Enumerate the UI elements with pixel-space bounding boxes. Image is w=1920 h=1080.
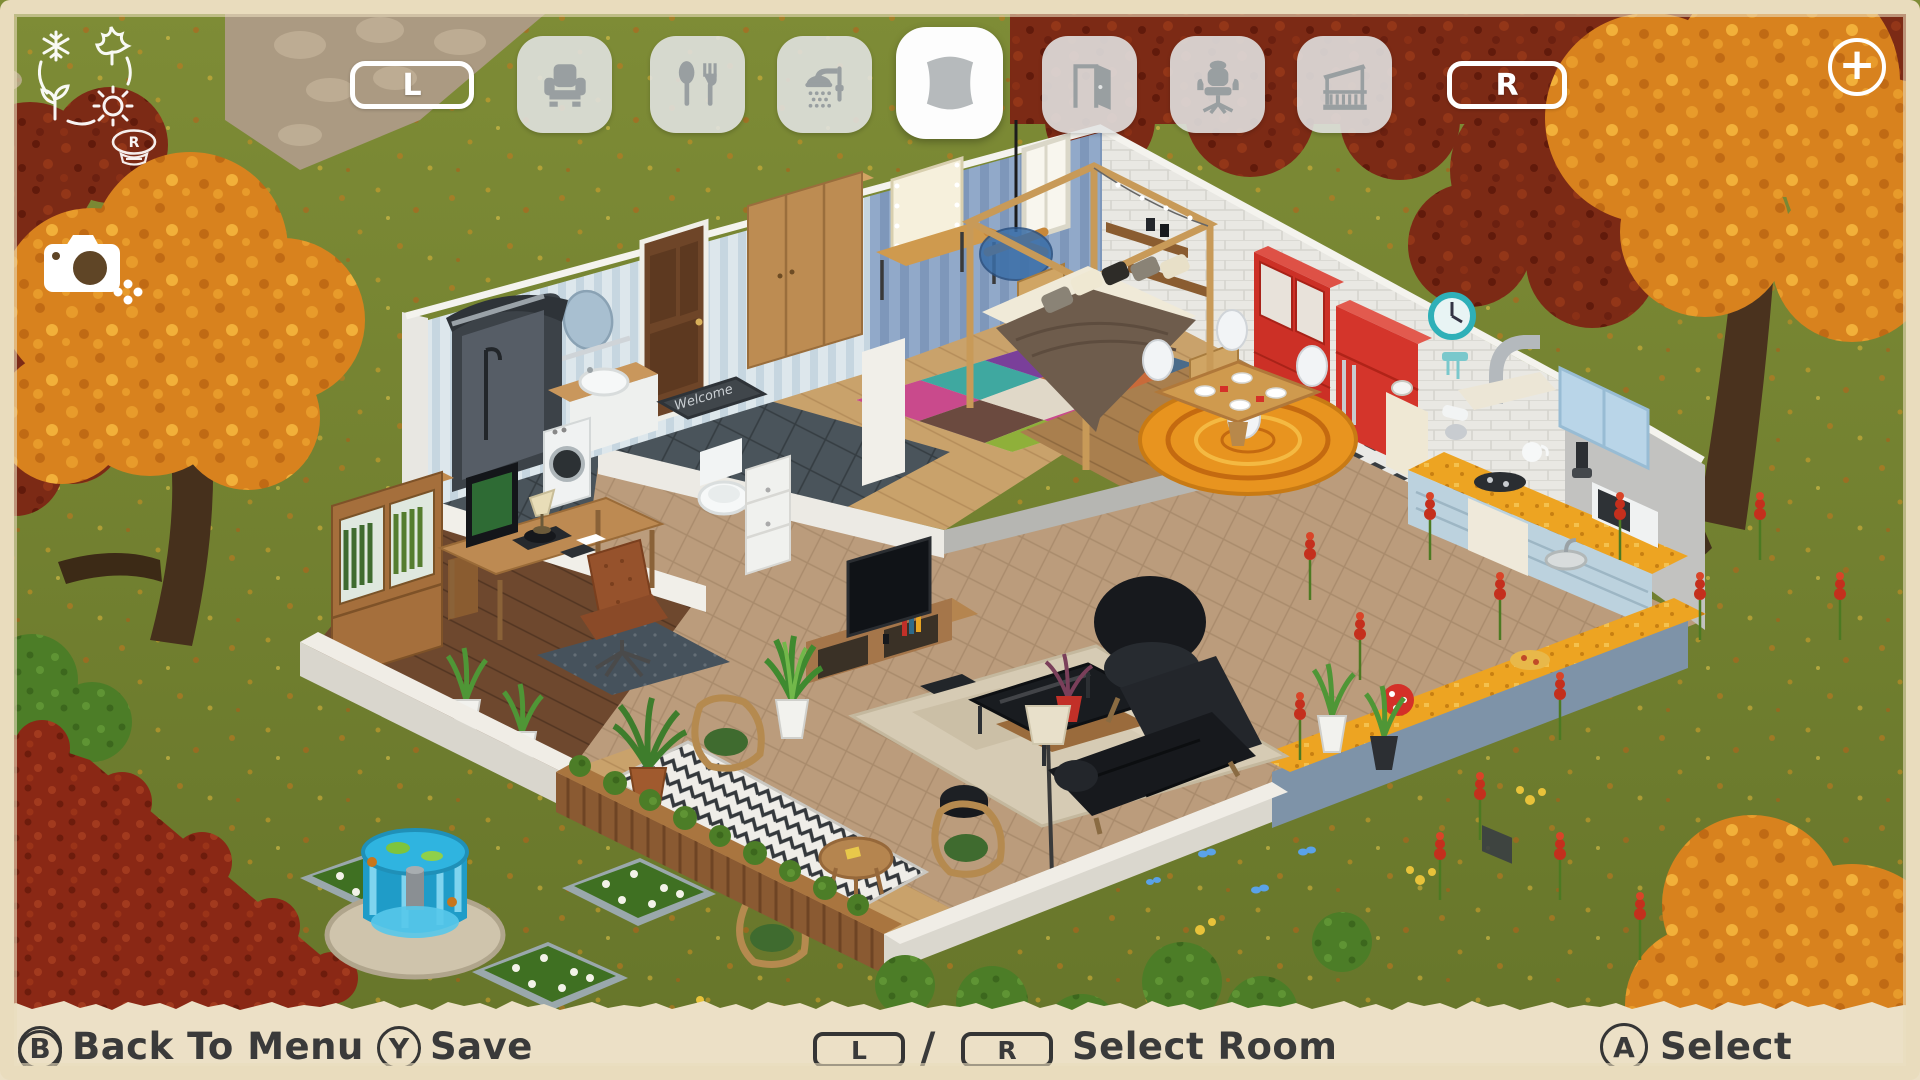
l-button-icon[interactable]: L xyxy=(813,1032,905,1068)
r-stick-icon: R xyxy=(108,128,160,174)
armchair-icon xyxy=(536,56,594,114)
cutlery-icon xyxy=(669,56,727,114)
cycle-arc xyxy=(68,121,94,124)
add-button[interactable]: + xyxy=(1828,38,1886,96)
tab-office[interactable] xyxy=(1170,36,1265,133)
tab-bathroom[interactable] xyxy=(777,36,872,133)
r-button-letter: R xyxy=(997,1036,1016,1065)
a-button-letter: A xyxy=(1613,1031,1635,1064)
snowflake-icon xyxy=(44,32,68,60)
kitchen-sink xyxy=(1546,551,1586,569)
prev-room-button[interactable]: L xyxy=(350,61,474,109)
select-room-label[interactable]: Select Room xyxy=(1072,1025,1337,1068)
select-label[interactable]: Select xyxy=(1660,1025,1792,1068)
prev-room-label: L xyxy=(402,68,421,103)
cycle-arc xyxy=(39,62,47,93)
season-dial[interactable] xyxy=(28,22,140,136)
save-label[interactable]: Save xyxy=(430,1025,533,1068)
camera-button[interactable] xyxy=(40,224,148,314)
balcony-icon xyxy=(1316,56,1374,114)
slash-separator: / xyxy=(920,1023,935,1072)
cycle-arc xyxy=(127,58,130,84)
office-chair-icon xyxy=(1189,56,1247,114)
maple-leaf-icon xyxy=(97,27,128,64)
r-button-icon[interactable]: R xyxy=(961,1032,1053,1068)
l-button-letter: L xyxy=(851,1036,867,1065)
sun-icon xyxy=(94,87,132,125)
a-button-icon[interactable]: A xyxy=(1600,1023,1648,1071)
hall-dresser xyxy=(746,456,790,574)
b-button-letter: B xyxy=(29,1032,50,1065)
shower-icon xyxy=(796,56,854,114)
back-to-menu-label[interactable]: Back To Menu xyxy=(72,1025,364,1068)
tab-balcony[interactable] xyxy=(1297,36,1392,133)
game-screen: Welcome xyxy=(0,0,1920,1080)
tab-doors[interactable] xyxy=(1042,36,1137,133)
y-button-letter: Y xyxy=(389,1032,409,1065)
tab-bedroom[interactable] xyxy=(896,27,1003,139)
tab-seating[interactable] xyxy=(517,36,612,133)
tab-dining[interactable] xyxy=(650,36,745,133)
svg-text:R: R xyxy=(129,135,140,151)
b-button-icon[interactable]: B xyxy=(18,1026,62,1070)
next-room-label: R xyxy=(1495,68,1518,103)
camera-icon xyxy=(44,235,120,292)
y-button-icon[interactable]: Y xyxy=(377,1026,421,1070)
next-room-button[interactable]: R xyxy=(1447,61,1567,109)
house-diorama: Welcome xyxy=(0,0,1920,1080)
door-icon xyxy=(1061,56,1119,114)
pillow-icon xyxy=(914,47,986,119)
